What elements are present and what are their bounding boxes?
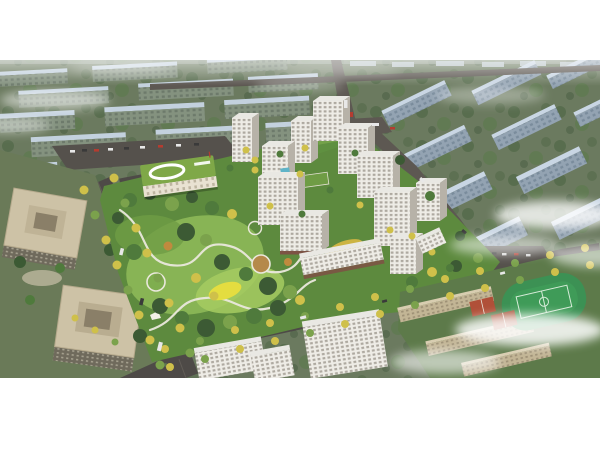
tower xyxy=(280,210,329,255)
office-tower-north xyxy=(2,188,87,270)
tower xyxy=(232,113,259,162)
rendering-canvas xyxy=(0,0,600,450)
architectural-rendering xyxy=(0,0,600,450)
bus xyxy=(344,100,348,108)
top-haze xyxy=(0,60,600,86)
office-plaza xyxy=(22,270,62,286)
round-planting-bed xyxy=(252,255,270,273)
